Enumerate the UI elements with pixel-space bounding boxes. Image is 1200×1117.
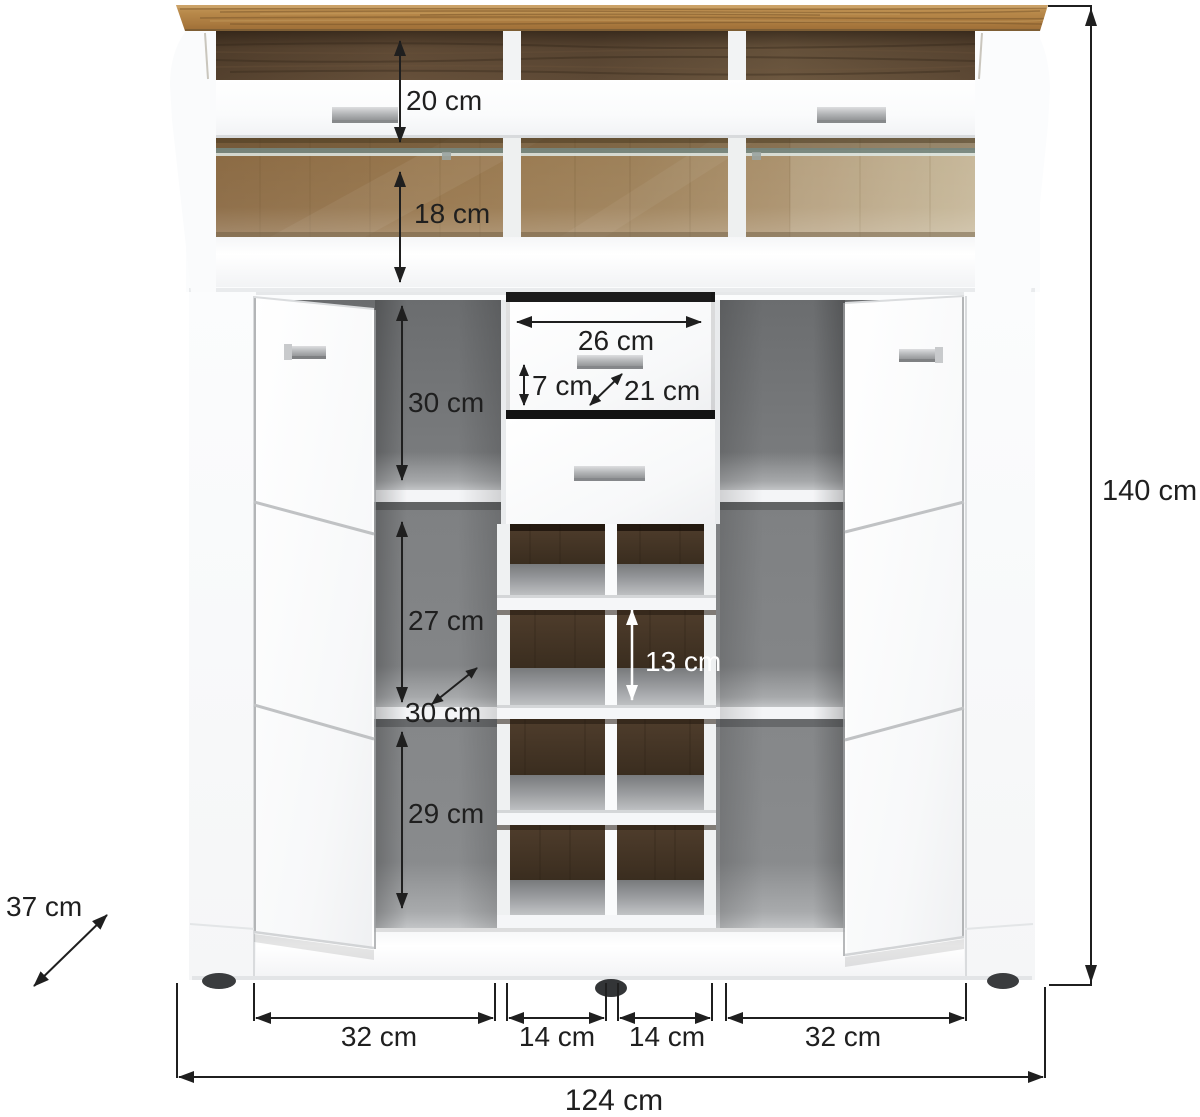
svg-text:18 cm: 18 cm <box>414 198 490 229</box>
svg-text:124 cm: 124 cm <box>565 1084 663 1117</box>
svg-text:26 cm: 26 cm <box>578 325 654 356</box>
svg-text:14 cm: 14 cm <box>629 1021 705 1052</box>
svg-text:30 cm: 30 cm <box>408 387 484 418</box>
svg-text:13 cm: 13 cm <box>645 646 721 677</box>
svg-text:20 cm: 20 cm <box>406 85 482 116</box>
svg-text:29 cm: 29 cm <box>408 798 484 829</box>
svg-text:21 cm: 21 cm <box>624 375 700 406</box>
svg-text:32 cm: 32 cm <box>341 1021 417 1052</box>
svg-text:37 cm: 37 cm <box>6 891 82 922</box>
svg-text:27 cm: 27 cm <box>408 605 484 636</box>
svg-text:140 cm: 140 cm <box>1102 475 1197 507</box>
svg-text:30 cm: 30 cm <box>405 697 481 728</box>
svg-text:7 cm: 7 cm <box>532 370 593 401</box>
svg-text:14 cm: 14 cm <box>519 1021 595 1052</box>
svg-text:32 cm: 32 cm <box>805 1021 881 1052</box>
